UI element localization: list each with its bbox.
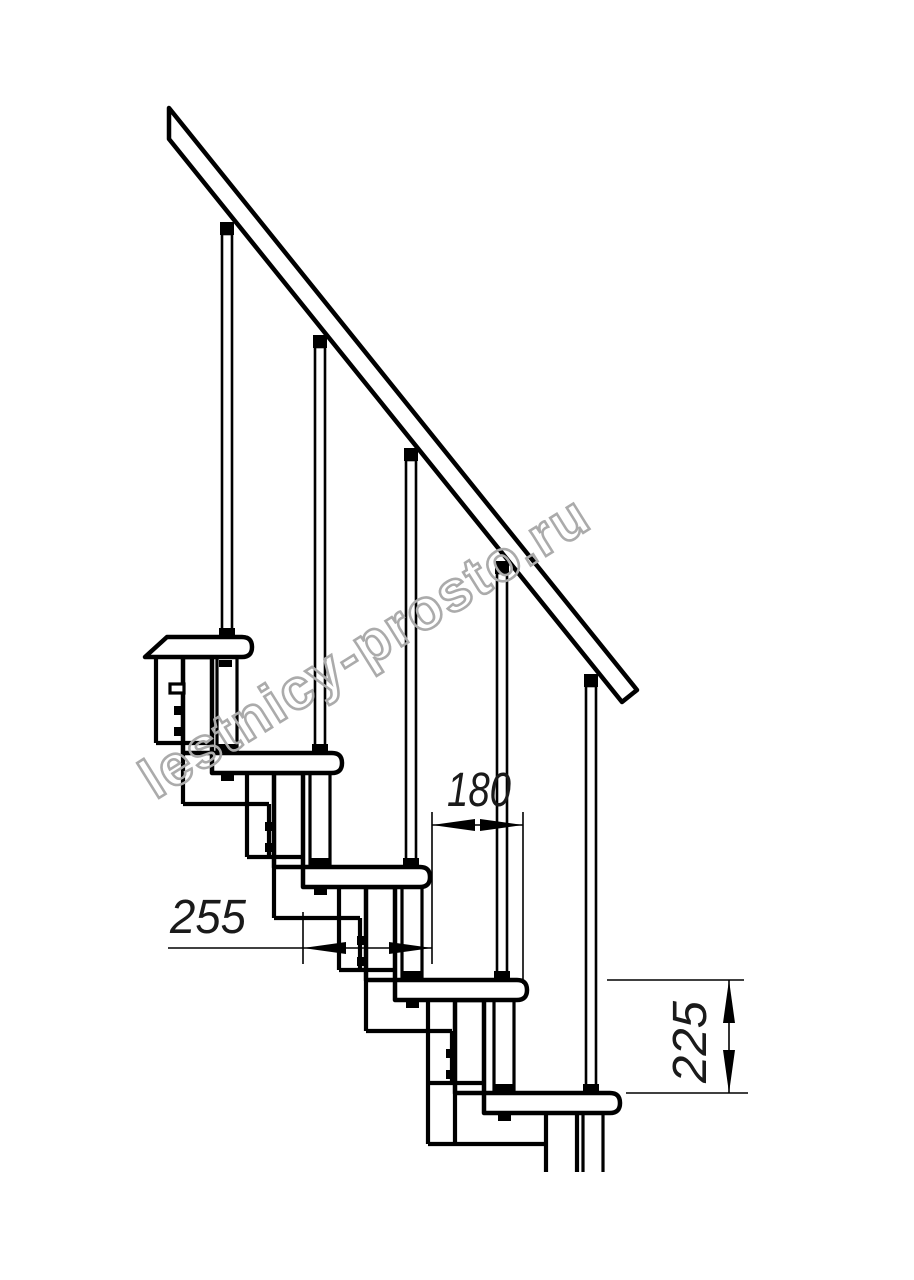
baluster-top-mount [220,222,234,235]
baluster-base-mount [583,1084,599,1093]
through-bolt-icon [498,1114,511,1121]
dimension-label-tread-depth: 255 [169,891,246,944]
baluster-shaft [586,686,596,1093]
step-4 [395,980,527,1000]
baluster-top-mount [313,335,327,348]
step-3 [303,867,430,887]
module-column [366,887,395,980]
dimension-step-run: 180 [432,764,523,984]
baluster-base-mount [219,628,235,637]
baluster-top-mount [404,448,418,461]
bolt-icon [265,822,274,831]
drawing-canvas: 255 180 225 lestnicy-prosto.ru [0,0,914,1280]
dimension-step-rise: 225 [607,980,748,1093]
bolt-icon [357,936,366,945]
baluster-top-mount [584,674,598,687]
bolt-icon [174,706,183,715]
support-module-4 [428,1000,546,1144]
through-bolt-icon [221,774,234,781]
through-bolt-icon [314,888,327,895]
module-tab [170,684,184,693]
staircase-drawing: 255 180 225 lestnicy-prosto.ru [0,0,914,1280]
through-bolt-icon [406,1001,419,1008]
dimension-label-rise: 225 [664,1001,717,1084]
through-bolt-icon [219,660,232,667]
baluster-shaft [406,460,416,867]
module-column [274,773,303,867]
bolt-icon [357,957,366,966]
module-column [455,1000,484,1093]
spine-tube-4 [494,1000,514,1093]
arrow-up-icon [723,980,735,1023]
arrow-left-icon [303,942,346,954]
baluster-shaft [222,234,232,637]
bolt-icon [446,1049,455,1058]
bolt-icon [446,1070,455,1079]
spine-collar-icon [311,858,329,868]
baluster-base-mount [494,971,510,980]
step-1 [145,637,252,657]
arrow-left-icon [432,819,475,831]
baluster-base-mount [312,744,328,753]
dimension-label-run: 180 [447,764,511,817]
arrow-down-icon [723,1050,735,1093]
spine-collar-icon [495,1084,513,1094]
spine-tube-3 [402,887,422,980]
step-5 [484,1093,620,1113]
bolt-icon [265,843,274,852]
spine-collar-icon [403,971,421,981]
baluster-base-mount [403,858,419,867]
support-module-5 [546,1113,577,1172]
spine-tube-2 [310,773,330,867]
baluster-1 [219,222,235,637]
baluster-5 [583,674,599,1093]
